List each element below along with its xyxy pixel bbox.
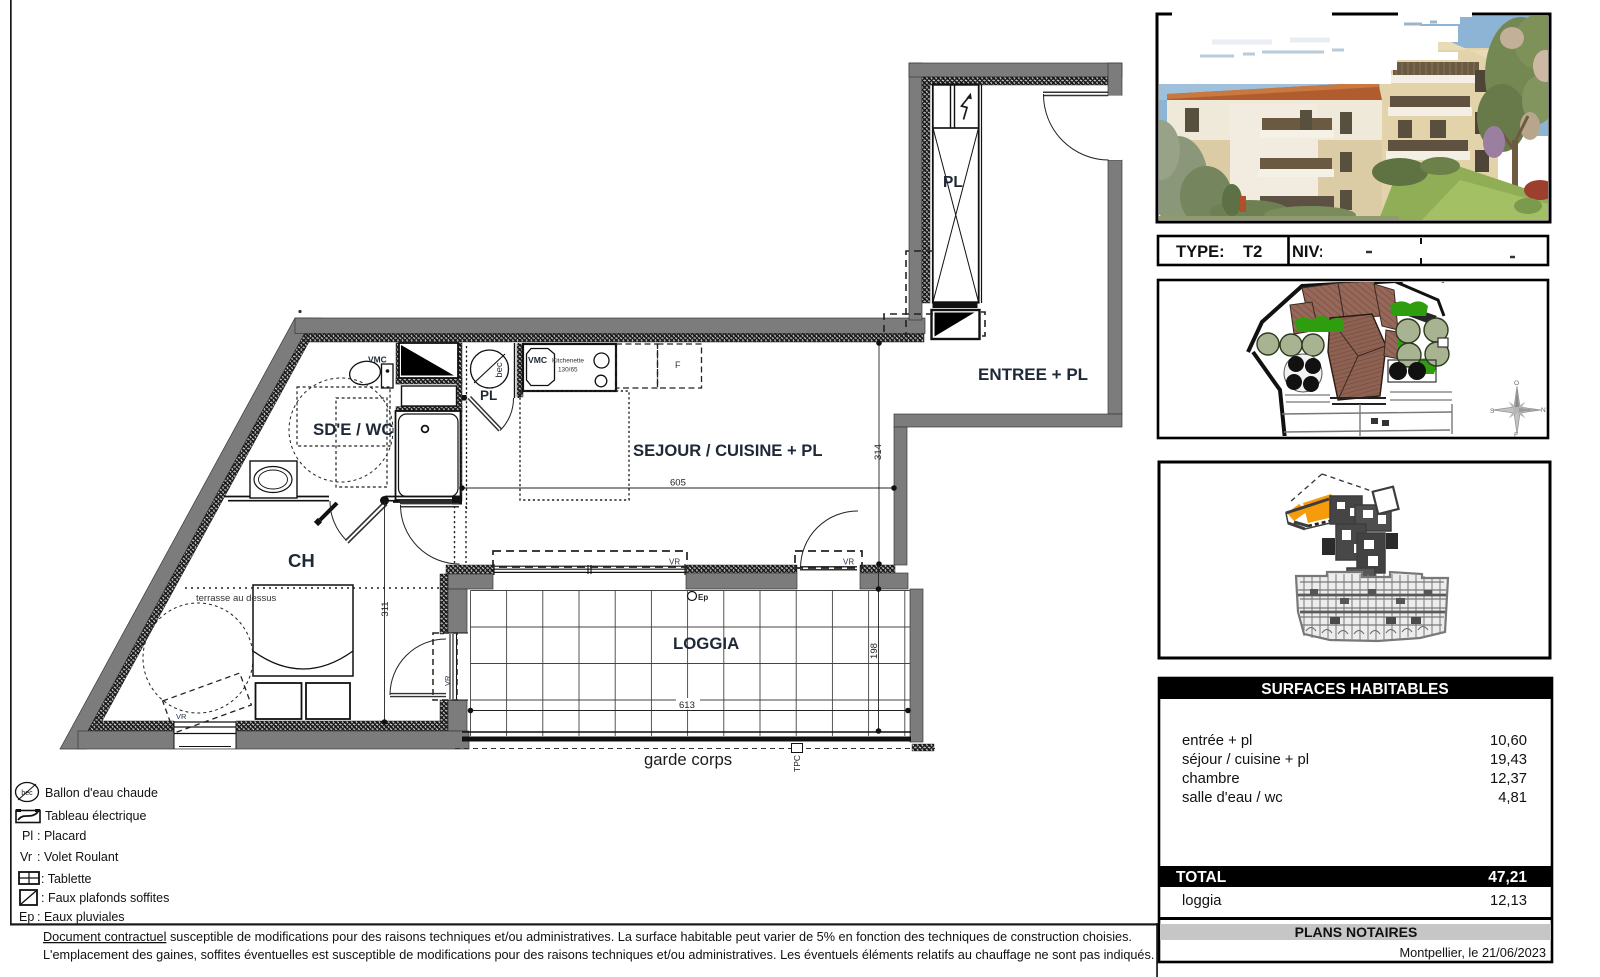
svg-text:Ballon d'eau chaude: Ballon d'eau chaude xyxy=(45,786,158,800)
svg-text:LOGGIA: LOGGIA xyxy=(673,634,739,653)
svg-text:terrasse au dessus: terrasse au dessus xyxy=(196,593,277,604)
svg-text:314: 314 xyxy=(873,444,884,460)
svg-text:Vr: Vr xyxy=(20,850,32,864)
svg-text:T2: T2 xyxy=(1243,243,1262,261)
svg-text:PL: PL xyxy=(943,174,963,191)
svg-text:E: E xyxy=(1514,432,1519,439)
svg-text:19,43: 19,43 xyxy=(1490,752,1527,768)
svg-text:Document contractuel susceptib: Document contractuel susceptible de modi… xyxy=(43,930,1132,944)
svg-text:VR: VR xyxy=(443,675,452,686)
svg-text:Pl: Pl xyxy=(22,829,33,843)
svg-text:10,60: 10,60 xyxy=(1490,733,1527,749)
svg-text:PLANS NOTAIRES: PLANS NOTAIRES xyxy=(1295,924,1418,940)
svg-text:Ep: Ep xyxy=(698,593,708,602)
svg-text:12,37: 12,37 xyxy=(1490,771,1527,787)
svg-text:ENTREE + PL: ENTREE + PL xyxy=(978,365,1088,384)
svg-text:L'emplacement des gaines, soff: L'emplacement des gaines, soffites évent… xyxy=(43,948,1154,962)
svg-text:garde corps: garde corps xyxy=(644,750,732,769)
svg-text:VMC: VMC xyxy=(528,355,547,365)
svg-text:Tableau électrique: Tableau électrique xyxy=(45,809,147,823)
svg-text:TYPE:: TYPE: xyxy=(1176,243,1225,261)
svg-text:: Tablette: : Tablette xyxy=(41,872,92,886)
svg-text:entrée + pl: entrée + pl xyxy=(1182,733,1252,749)
svg-text:605: 605 xyxy=(670,478,686,489)
svg-text:NIV:: NIV: xyxy=(1292,243,1324,261)
svg-text:O: O xyxy=(1514,380,1519,387)
svg-text:: Placard: : Placard xyxy=(37,829,86,843)
svg-text:311: 311 xyxy=(380,601,391,616)
svg-text:VR: VR xyxy=(843,558,854,567)
svg-text:CH: CH xyxy=(288,550,315,571)
svg-text:: Faux plafonds soffites: : Faux plafonds soffites xyxy=(41,891,169,905)
svg-text:PL: PL xyxy=(480,388,497,403)
svg-text:TOTAL: TOTAL xyxy=(1176,869,1226,886)
svg-text:Kitchenette: Kitchenette xyxy=(552,358,584,365)
svg-text:4,81: 4,81 xyxy=(1498,790,1527,806)
svg-text:chambre: chambre xyxy=(1182,771,1240,787)
svg-text:SD'E / WC: SD'E / WC xyxy=(313,420,393,439)
svg-text:F: F xyxy=(675,360,681,370)
svg-text:S: S xyxy=(1490,408,1495,415)
svg-text:VR: VR xyxy=(669,558,680,567)
svg-text:SURFACES HABITABLES: SURFACES HABITABLES xyxy=(1261,681,1448,698)
svg-text:bec: bec xyxy=(21,790,33,797)
svg-text:198: 198 xyxy=(869,643,880,659)
svg-text:TPC: TPC xyxy=(792,755,802,772)
svg-text:613: 613 xyxy=(679,700,695,711)
svg-text:: Eaux pluviales: : Eaux pluviales xyxy=(37,910,125,924)
svg-text:: Volet Roulant: : Volet Roulant xyxy=(37,850,119,864)
svg-text:bec: bec xyxy=(494,362,505,378)
svg-text:salle d'eau / wc: salle d'eau / wc xyxy=(1182,790,1283,806)
svg-text:SEJOUR / CUISINE + PL: SEJOUR / CUISINE + PL xyxy=(633,441,823,460)
svg-text:VMC: VMC xyxy=(368,355,387,365)
svg-text:130/65: 130/65 xyxy=(558,367,578,374)
svg-text:47,21: 47,21 xyxy=(1488,869,1527,886)
svg-text:Ep: Ep xyxy=(19,910,34,924)
svg-text:VR: VR xyxy=(176,712,187,721)
svg-text:séjour / cuisine + pl: séjour / cuisine + pl xyxy=(1182,752,1309,768)
svg-text:N: N xyxy=(1541,407,1546,414)
svg-text:loggia: loggia xyxy=(1182,893,1222,909)
svg-text:Montpellier, le 21/06/2023: Montpellier, le 21/06/2023 xyxy=(1399,945,1546,960)
svg-text:12,13: 12,13 xyxy=(1490,893,1527,909)
